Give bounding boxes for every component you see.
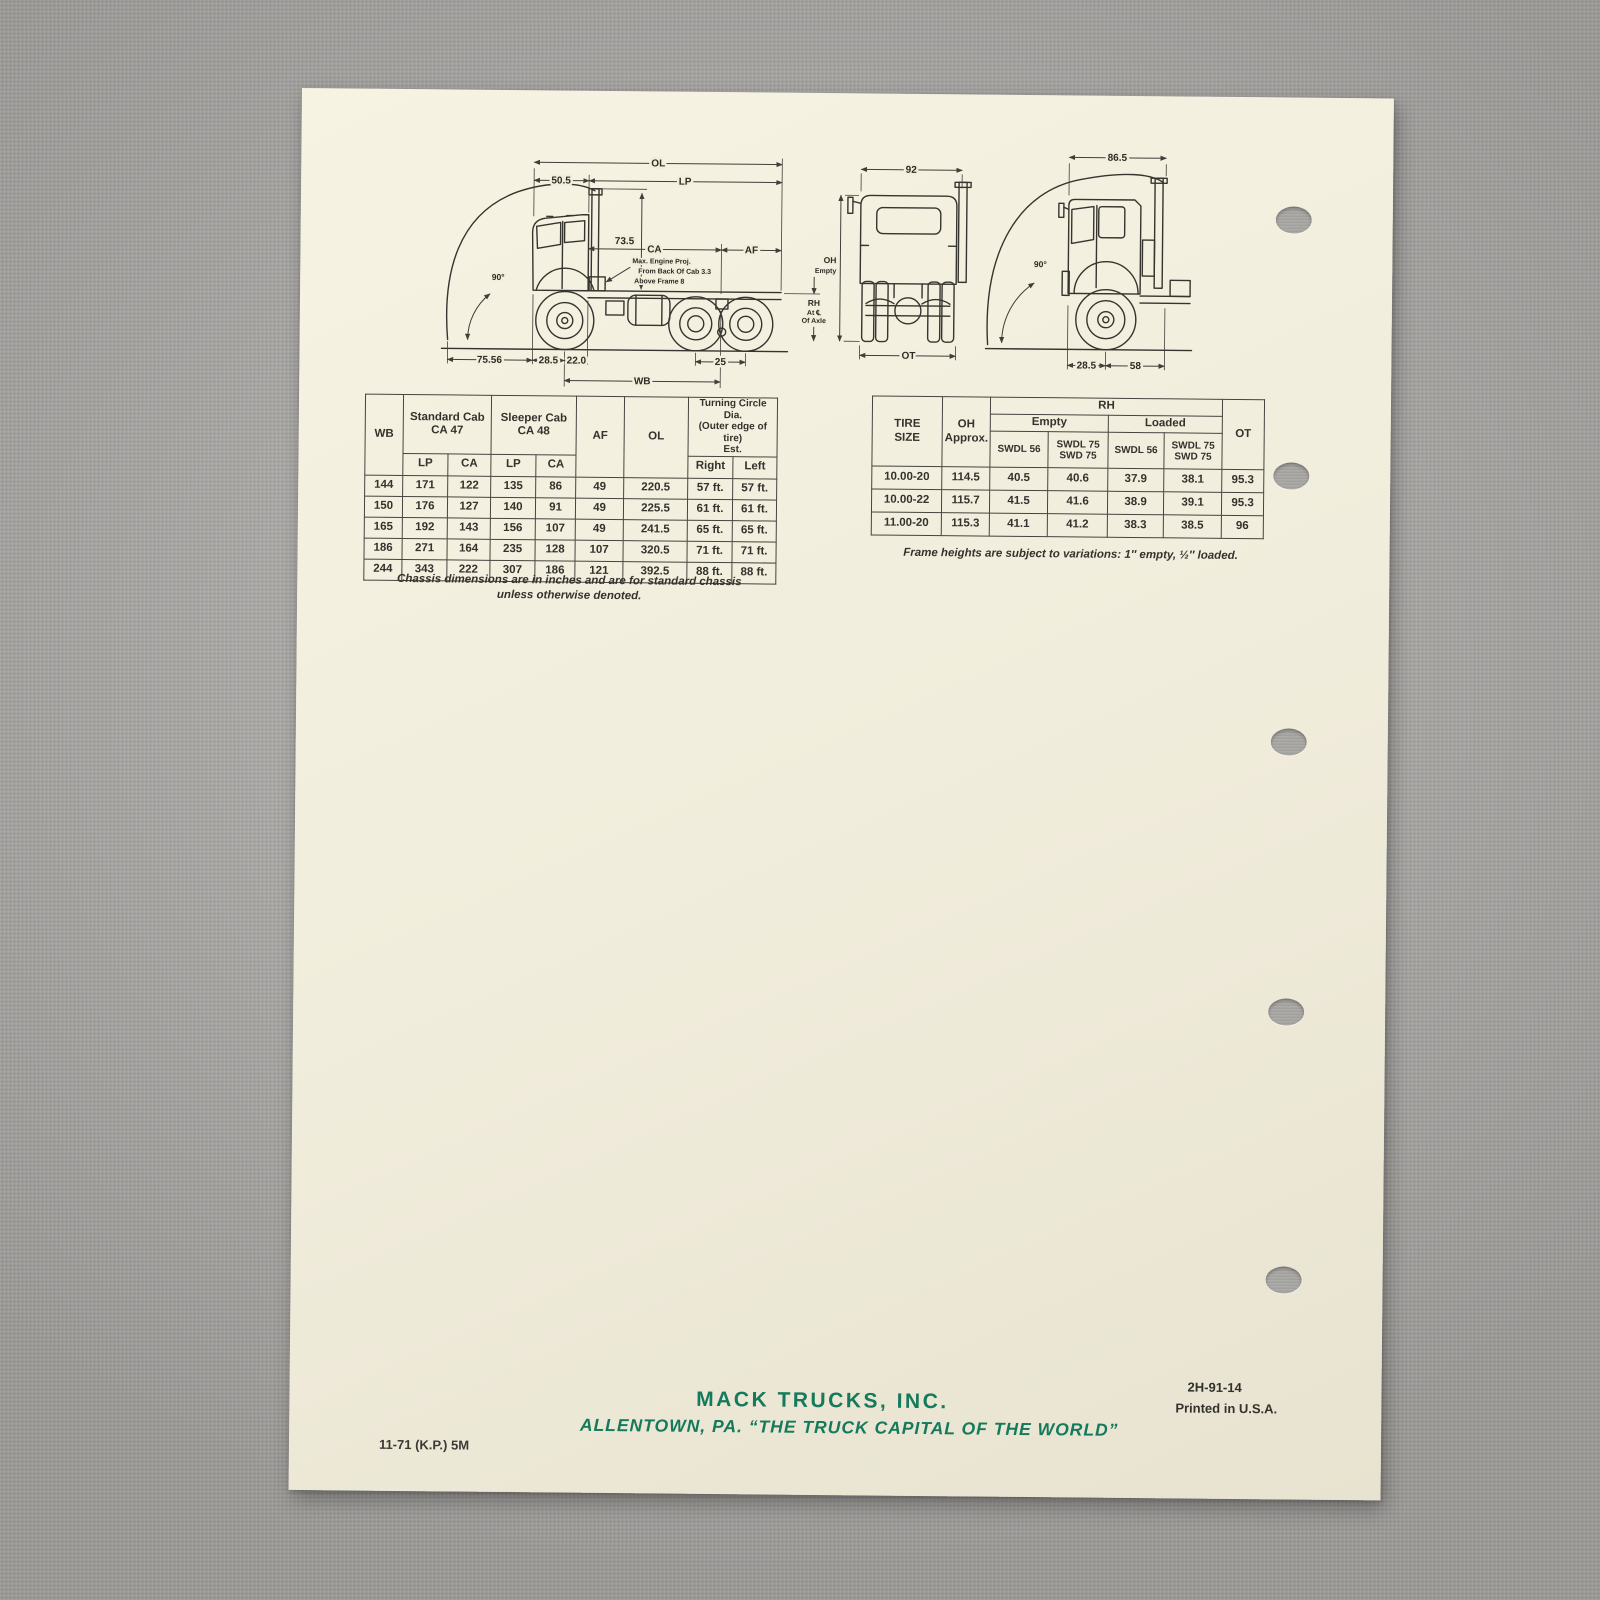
header-loaded-swdl56: SWDL 56: [1108, 432, 1164, 469]
cell: 140: [490, 497, 535, 518]
header-standard-cab: Standard Cab CA 47: [403, 394, 492, 453]
cell: 38.5: [1163, 515, 1221, 539]
punch-hole: [1265, 1266, 1301, 1293]
side-bumper-axle-label: 28.5: [539, 355, 559, 366]
punch-hole: [1276, 206, 1312, 233]
table-row: 11.00-20115.341.141.238.338.596: [871, 512, 1263, 539]
cell: 40.6: [1048, 468, 1108, 492]
frame-height-dimension: RH At ℄ Of Axle: [784, 277, 827, 341]
tire-size-line1: TIRE: [875, 418, 940, 432]
side-tandem-spread-label: 25: [715, 357, 727, 368]
cell: 271: [402, 538, 447, 559]
cell: 37.9: [1108, 468, 1164, 492]
company-name: MACK TRUCKS, INC.: [696, 1388, 949, 1414]
chassis-table-note: Chassis dimensions are in inches and are…: [343, 571, 795, 605]
tilt-bumper-axle-label: 28.5: [1077, 360, 1097, 371]
cell: 128: [535, 539, 575, 560]
cell: 186: [364, 538, 402, 559]
cell: 114.5: [942, 467, 990, 490]
header-tire-size: TIRE SIZE: [872, 396, 943, 467]
header-rh: RH: [990, 397, 1222, 416]
rh-label: RH: [808, 298, 820, 308]
cell: 96: [1221, 515, 1263, 538]
cell: 86: [536, 476, 576, 497]
cell: 135: [491, 476, 536, 497]
cell: 107: [575, 540, 623, 561]
truck-dimension-diagrams: 90° OL 50.5 LP 73.5 CA AF Max. Engin: [427, 141, 1199, 403]
form-number: 2H-91-14: [1187, 1380, 1241, 1396]
cell: 65 ft.: [732, 520, 776, 541]
cell: 115.7: [941, 490, 989, 513]
cell: 122: [448, 475, 491, 496]
empty-swdl75-line2: SWD 75: [1050, 450, 1105, 462]
tilt-clearance-label: 86.5: [1108, 153, 1128, 164]
rh-line2: At ℄: [807, 309, 821, 317]
cell: 176: [402, 496, 447, 517]
side-lp-label: LP: [679, 177, 692, 188]
header-ot: OT: [1222, 399, 1265, 469]
rear-cab-width-label: 92: [906, 165, 918, 176]
cell: 61 ft.: [687, 499, 732, 520]
side-ca-label: CA: [647, 244, 662, 255]
cell: 171: [403, 475, 448, 496]
cell: 91: [535, 497, 575, 518]
loaded-swdl75-line1: SWDL 75: [1167, 440, 1220, 452]
cell: 235: [490, 539, 535, 560]
cell: 11.00-20: [871, 512, 941, 536]
tilt-axle-back-label: 58: [1130, 361, 1142, 372]
header-loaded-swdl75: SWDL 75 SWD 75: [1164, 433, 1222, 470]
cell: 65 ft.: [687, 520, 732, 541]
header-af: AF: [576, 396, 625, 477]
side-ol-label: OL: [651, 158, 665, 169]
rh-line3: Of Axle: [802, 318, 826, 325]
cell: 71 ft.: [732, 541, 776, 562]
header-lp-std: LP: [403, 453, 448, 475]
turning-line3: Est.: [691, 444, 775, 456]
engine-note-line2: From Back Of Cab 3.3: [638, 268, 711, 276]
loaded-swdl75-line2: SWD 75: [1166, 451, 1219, 463]
turning-line1: Turning Circle Dia.: [691, 398, 775, 422]
cell: 95.3: [1222, 469, 1264, 492]
cell: 41.2: [1047, 514, 1107, 538]
header-ca-std: CA: [448, 453, 491, 475]
table-header-row: TIRE SIZE OH Approx. RH OT: [872, 396, 1264, 417]
spec-sheet: 90° OL 50.5 LP 73.5 CA AF Max. Engin: [289, 88, 1394, 1500]
side-af-label: AF: [745, 245, 758, 256]
cell: 115.3: [941, 513, 989, 536]
header-lp-slp: LP: [491, 454, 536, 476]
cell: 95.3: [1221, 492, 1263, 515]
header-right: Right: [688, 456, 733, 478]
cell: 49: [575, 519, 623, 540]
tire-table-note: Frame heights are subject to variations:…: [860, 545, 1280, 564]
punch-hole: [1271, 728, 1307, 755]
punch-hole: [1273, 462, 1309, 489]
rear-oh-label: OH: [824, 255, 837, 265]
header-empty: Empty: [990, 414, 1108, 432]
cell: 192: [402, 517, 447, 538]
cell: 127: [447, 496, 490, 517]
cell: 38.3: [1107, 514, 1163, 538]
cell: 144: [365, 475, 403, 496]
side-view-dimensions: 90° OL 50.5 LP 73.5 CA AF Max. Engin: [447, 155, 782, 388]
cell: 38.1: [1164, 469, 1222, 493]
side-view-truck-drawing: [442, 183, 790, 352]
cell: 39.1: [1163, 492, 1221, 516]
turning-line2: (Outer edge of tire): [691, 421, 775, 445]
cell: 41.6: [1047, 491, 1107, 515]
cell: 41.5: [989, 490, 1047, 514]
cell: 241.5: [623, 519, 687, 541]
header-turning-circle: Turning Circle Dia. (Outer edge of tire)…: [688, 397, 778, 456]
cell: 156: [490, 518, 535, 539]
side-stack-height-label: 73.5: [615, 236, 635, 247]
header-empty-swdl75: SWDL 75 SWD 75: [1048, 432, 1108, 469]
cell: 225.5: [623, 498, 687, 520]
chassis-dimensions-table: WB Standard Cab CA 47 Sleeper Cab CA 48 …: [363, 394, 778, 584]
cell: 107: [535, 518, 575, 539]
oh-approx-line2: Approx.: [945, 432, 988, 446]
cell: 143: [447, 517, 490, 538]
header-oh-approx: OH Approx.: [942, 397, 991, 467]
tilt-angle-label: 90°: [1034, 259, 1048, 269]
cell: 49: [575, 498, 623, 519]
cell: 57 ft.: [733, 478, 777, 499]
printed-in-usa: Printed in U.S.A.: [1175, 1400, 1277, 1416]
cell: 10.00-20: [872, 466, 942, 490]
photo-background: 90° OL 50.5 LP 73.5 CA AF Max. Engin: [0, 0, 1600, 1600]
cell: 49: [576, 477, 624, 498]
header-empty-swdl56: SWDL 56: [990, 431, 1048, 468]
engine-note-line3: Above Frame 8: [634, 278, 684, 285]
side-front-overhang-label: 50.5: [551, 175, 571, 186]
cell: 41.1: [989, 513, 1047, 537]
rear-view-truck-drawing: [847, 181, 972, 342]
header-wb: WB: [365, 394, 404, 475]
cell: 150: [364, 496, 402, 517]
header-sleeper-cab: Sleeper Cab CA 48: [491, 395, 577, 454]
oh-approx-line1: OH: [945, 418, 988, 432]
tire-size-line2: SIZE: [875, 431, 940, 445]
tilt-view-truck-drawing: [986, 173, 1194, 350]
header-ca-slp: CA: [536, 454, 576, 476]
header-ol: OL: [624, 397, 689, 478]
cell: 10.00-22: [871, 489, 941, 513]
side-axle-cab-label: 22.0: [567, 356, 587, 367]
cell: 71 ft.: [687, 541, 732, 562]
cell: 164: [447, 538, 490, 559]
sleeper-cab-line2: CA 48: [494, 425, 574, 439]
print-run-code: 11-71 (K.P.) 5M: [379, 1437, 469, 1453]
header-left: Left: [733, 456, 777, 478]
standard-cab-line1: Standard Cab: [406, 411, 489, 425]
tire-frame-height-table: TIRE SIZE OH Approx. RH OT Empty Loaded …: [871, 395, 1265, 539]
engine-note-line1: Max. Engine Proj.: [632, 258, 690, 266]
side-tilt-radius-label: 75.56: [477, 355, 503, 366]
rear-oh-line2: Empty: [815, 268, 837, 275]
punch-hole: [1268, 998, 1304, 1025]
cell: 320.5: [623, 540, 687, 562]
sleeper-cab-line1: Sleeper Cab: [494, 411, 574, 425]
table-header-row: WB Standard Cab CA 47 Sleeper Cab CA 48 …: [365, 394, 778, 456]
header-loaded: Loaded: [1108, 415, 1222, 433]
standard-cab-line2: CA 47: [406, 424, 489, 438]
cell: 61 ft.: [732, 499, 776, 520]
cell: 57 ft.: [688, 478, 733, 499]
side-wb-label: WB: [634, 376, 651, 387]
cell: 220.5: [624, 477, 688, 499]
empty-swdl75-line1: SWDL 75: [1051, 439, 1106, 451]
cell: 38.9: [1107, 491, 1163, 515]
company-tagline: ALLENTOWN, PA. “THE TRUCK CAPITAL OF THE…: [580, 1415, 1119, 1441]
cell: 40.5: [990, 467, 1048, 491]
cell: 165: [364, 517, 402, 538]
side-tilt-angle-label: 90°: [492, 272, 506, 282]
rear-ot-label: OT: [901, 351, 915, 362]
